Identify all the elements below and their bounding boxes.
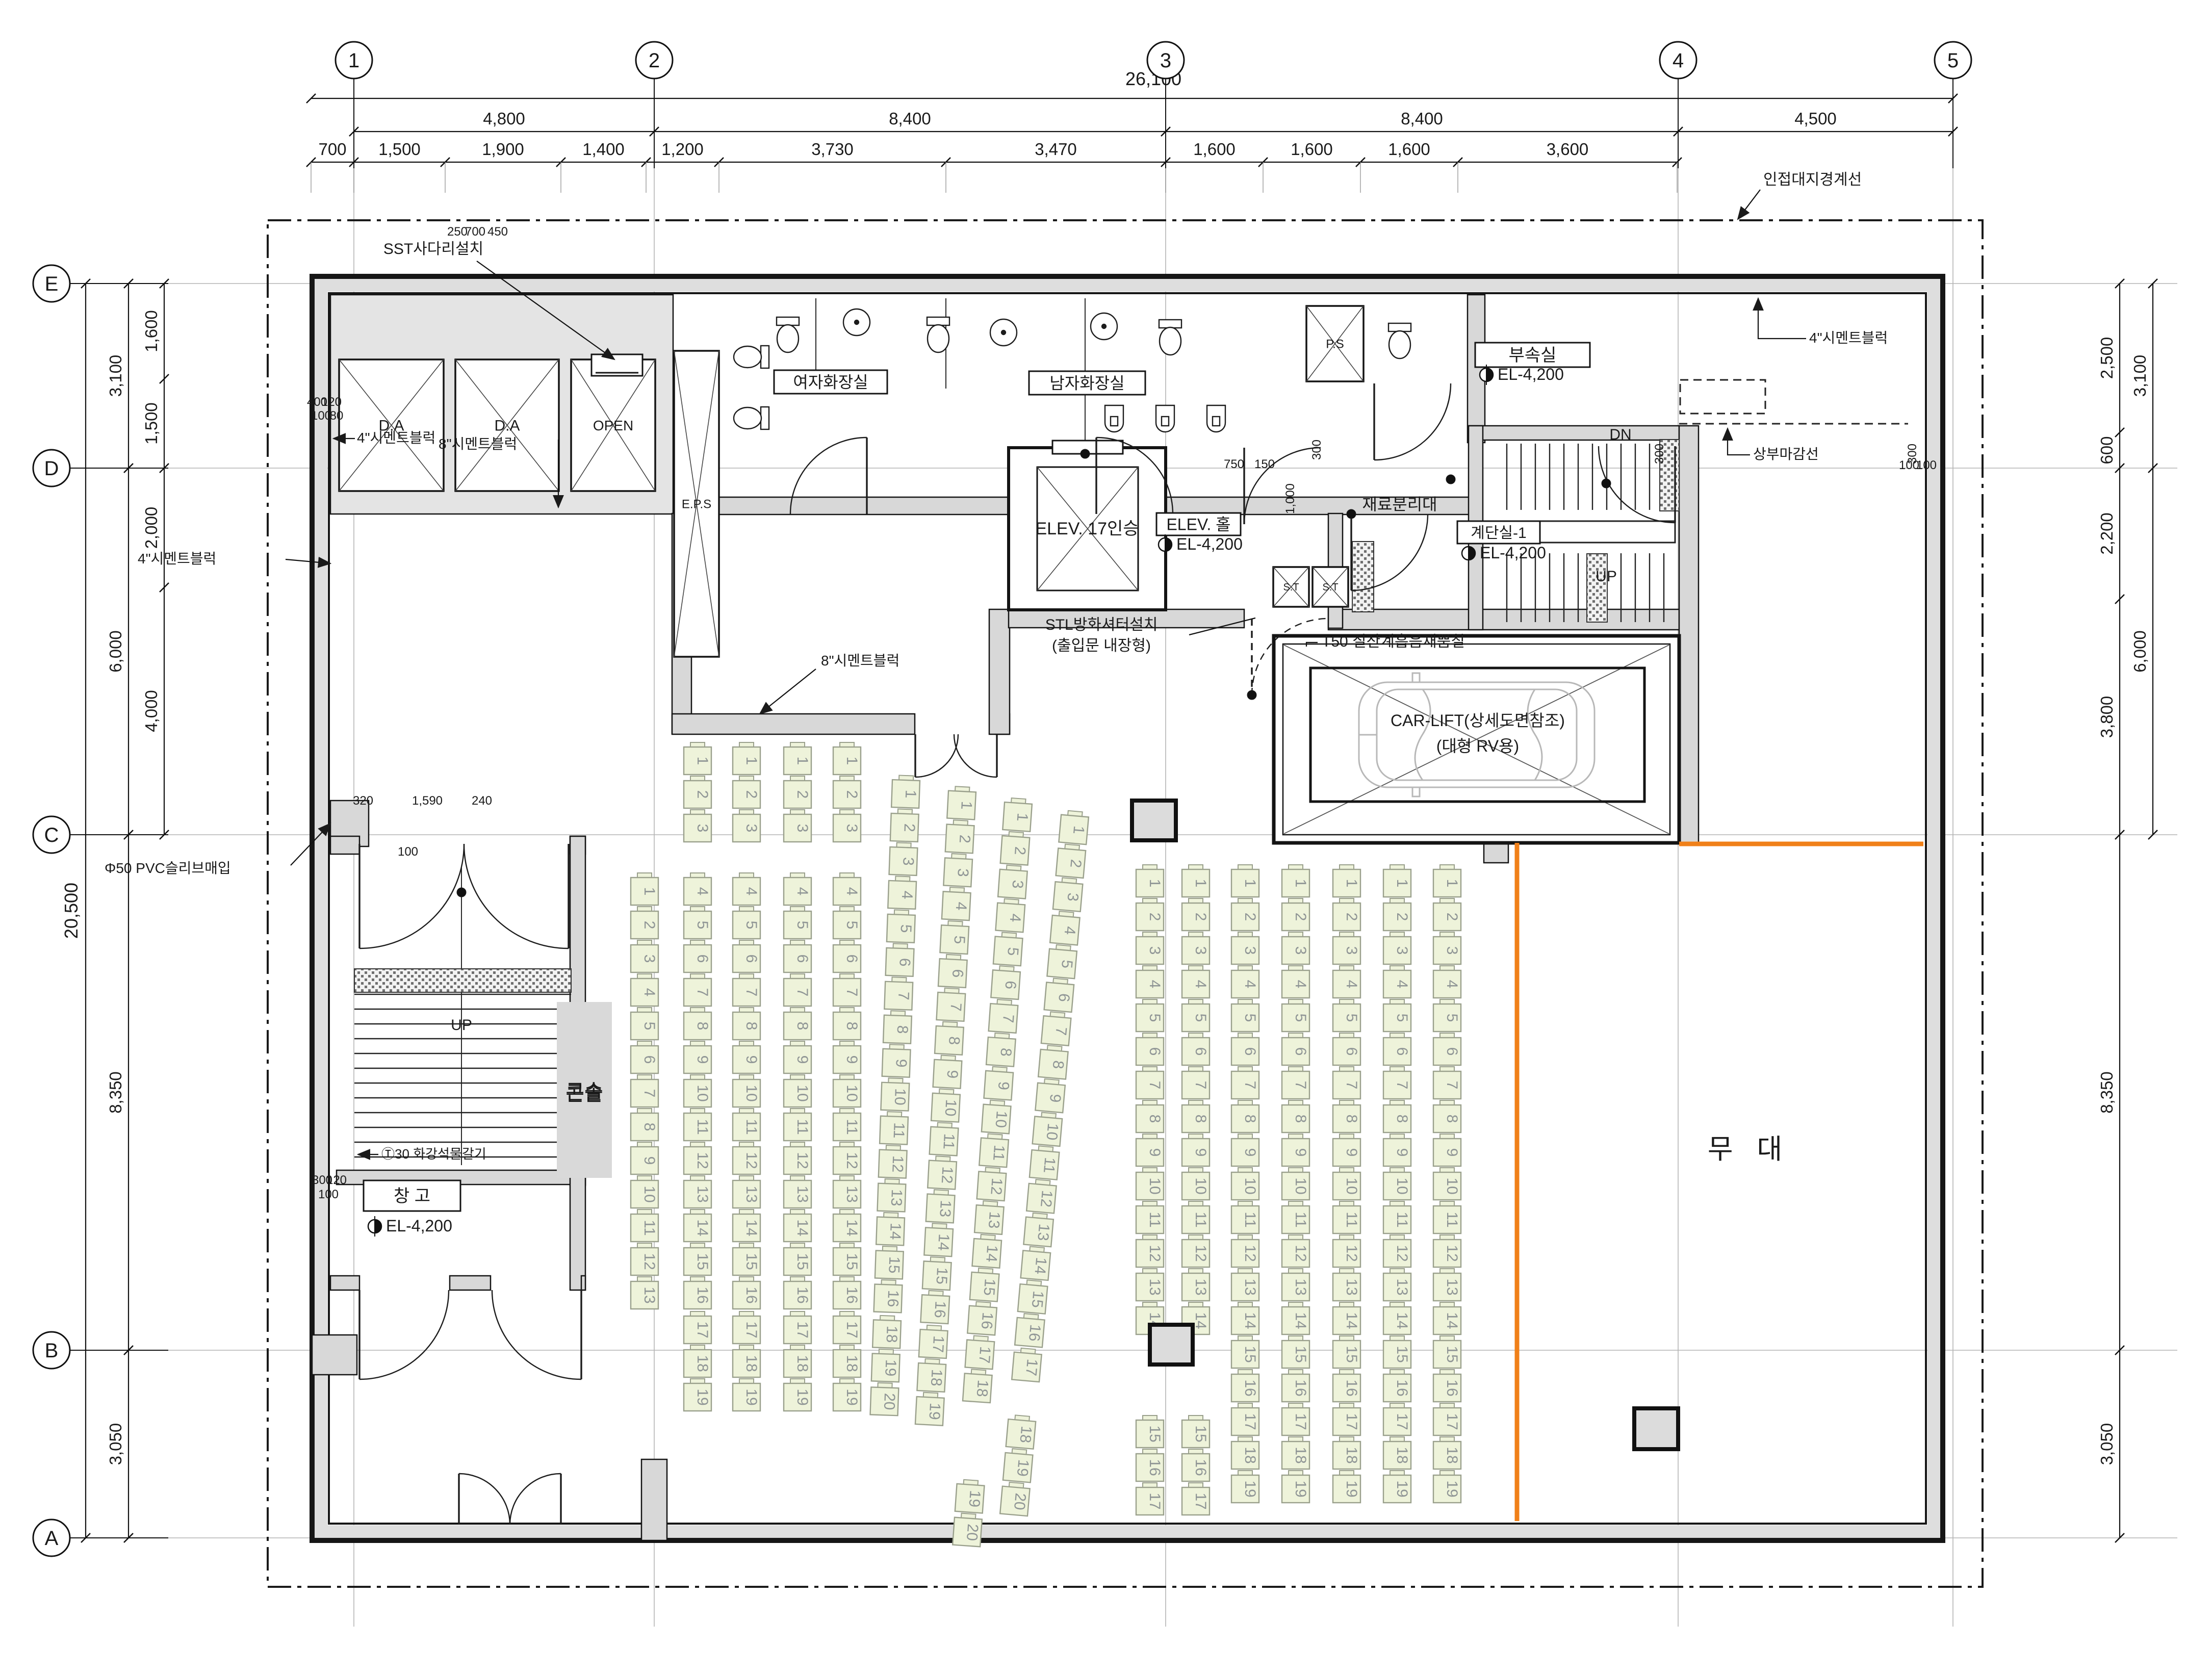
dimension-value: 6,000 <box>106 630 125 673</box>
seat-number: 13 <box>985 1211 1003 1229</box>
grid-bubble-number: 5 <box>1947 49 1959 72</box>
seat-number: 17 <box>1444 1413 1460 1430</box>
seat-number: 2 <box>794 790 811 799</box>
seat-number: 5 <box>950 935 968 944</box>
seat-number: 1 <box>1343 879 1360 888</box>
seat-number: 18 <box>1394 1447 1410 1463</box>
dimension-value: 2,500 <box>2097 337 2116 379</box>
elevation-value: EL-4,200 <box>1480 544 1546 562</box>
seat-number: 11 <box>794 1119 811 1135</box>
seat-number: 19 <box>794 1388 811 1405</box>
seat-number: 11 <box>890 1122 907 1139</box>
dimension-value: 1,500 <box>378 140 421 159</box>
floor-plan-drawing: D.AD.AOPENE.P.SP.SS.TS.TELEV. 17인승CAR-LI… <box>0 0 2212 1673</box>
seat-number: 16 <box>1242 1379 1258 1396</box>
seat-number: 6 <box>641 1056 658 1064</box>
sink-icon <box>843 309 870 336</box>
seat-number: 4 <box>743 887 760 896</box>
seat-number: 7 <box>1146 1081 1163 1090</box>
annotation-text: 4"시멘트블럭 <box>357 430 435 446</box>
annotation-text: Ⓣ30 화강석물갈기 <box>381 1146 486 1162</box>
grid-bubble-letter: C <box>44 824 59 846</box>
seat-number: 5 <box>1394 1014 1410 1022</box>
seat-number: 6 <box>1444 1047 1460 1056</box>
seat-number: 9 <box>1046 1093 1064 1103</box>
grid-bubble-number: 2 <box>649 49 660 72</box>
small-dimension: 240 <box>472 794 492 808</box>
seat-number: 1 <box>1394 879 1410 888</box>
seat-number: 15 <box>1292 1346 1309 1362</box>
seat-number: 14 <box>887 1223 904 1241</box>
car-lift-sublabel: (대형 RV용) <box>1436 737 1519 755</box>
dimension-value: 1,600 <box>1291 140 1333 159</box>
wall-segment <box>450 1276 491 1290</box>
seat-number: 9 <box>944 1070 961 1079</box>
dimension-value: 1,400 <box>582 140 625 159</box>
grid-bubble-letter: E <box>45 273 59 295</box>
car-lift-label: CAR-LIFT(상세도면참조) <box>1391 711 1565 730</box>
seat-number: 4 <box>953 902 970 911</box>
seat-number: 16 <box>694 1286 711 1303</box>
seat-number: 16 <box>1394 1379 1410 1396</box>
seat-number: 13 <box>1034 1223 1052 1242</box>
seat-number: 10 <box>1343 1177 1360 1194</box>
seat-number: 12 <box>1037 1190 1056 1208</box>
seat-number: 12 <box>987 1177 1005 1196</box>
seat-number: 8 <box>794 1022 811 1031</box>
seat-number: 15 <box>981 1278 998 1297</box>
wall-segment <box>581 1276 585 1290</box>
room-name-label: 부속실 <box>1509 346 1557 365</box>
seat-number: 16 <box>743 1286 760 1303</box>
seat-number: 17 <box>1394 1413 1410 1430</box>
annotation-text: (출입문 내장형) <box>1052 637 1151 654</box>
seat-number: 5 <box>743 921 760 930</box>
seat-number: 2 <box>1394 913 1410 921</box>
sink-icon <box>1091 313 1117 340</box>
seat-number: 10 <box>794 1085 811 1101</box>
small-dimension: 300 <box>1653 444 1666 464</box>
seat-number: 15 <box>1028 1290 1047 1308</box>
seat-number: 12 <box>1192 1245 1209 1262</box>
seat-number: 16 <box>1292 1379 1309 1396</box>
dimension-value: 4,500 <box>1794 109 1837 128</box>
hatched-block-pier <box>1352 542 1374 612</box>
seat-number: 4 <box>898 890 916 899</box>
seat-number: 3 <box>899 857 917 866</box>
seat-number: 14 <box>1242 1312 1258 1329</box>
seat-number: 12 <box>1394 1245 1410 1262</box>
seat-number: 4 <box>1444 980 1460 989</box>
room-label: S.T <box>1322 582 1338 593</box>
seat-number: 9 <box>995 1081 1012 1091</box>
wall-segment <box>989 609 1010 734</box>
grid-bubble-letter: A <box>45 1527 59 1550</box>
room-name-label: 여자화장실 <box>793 373 868 392</box>
seat-number: 16 <box>931 1301 949 1319</box>
seat-number: 4 <box>641 988 658 997</box>
seat-number: 10 <box>942 1099 960 1117</box>
seat-number: 5 <box>1444 1014 1460 1022</box>
seat-number: 4 <box>1292 980 1309 989</box>
toilet-icon <box>734 346 769 368</box>
seat-number: 6 <box>1242 1047 1258 1056</box>
seat-number: 18 <box>1242 1447 1258 1463</box>
seat-number: 11 <box>1242 1212 1258 1227</box>
text-label: UP <box>451 1017 472 1034</box>
seat-number: 6 <box>743 955 760 963</box>
dimension-value: 3,050 <box>106 1423 125 1465</box>
seat-number: 10 <box>1192 1177 1209 1194</box>
seat-number: 16 <box>978 1311 996 1330</box>
seat-number: 18 <box>1017 1425 1035 1444</box>
seat-number: 8 <box>1192 1115 1209 1123</box>
dimension-value: 1,600 <box>1388 140 1430 159</box>
annotation-text: Φ50 PVC슬리브매입 <box>105 860 231 876</box>
seat-number: 17 <box>1022 1358 1041 1377</box>
wall-segment <box>1679 426 1699 844</box>
structural-column <box>1150 1325 1193 1365</box>
seat-number: 17 <box>1192 1492 1209 1509</box>
seat-number: 18 <box>694 1355 711 1372</box>
seat-number: 14 <box>1394 1312 1410 1329</box>
seat-number: 14 <box>1292 1312 1309 1329</box>
seat-number: 2 <box>1067 859 1084 869</box>
elevation-value: EL-4,200 <box>1498 365 1564 383</box>
wall-segment <box>330 836 359 854</box>
seat-number: 9 <box>743 1056 760 1064</box>
seat-number: 1 <box>902 789 919 799</box>
toilet-icon <box>1388 323 1411 358</box>
annotation-text: 상부마감선 <box>1753 446 1819 462</box>
seat-number: 4 <box>1242 980 1258 989</box>
dimension-value: 3,470 <box>1035 140 1077 159</box>
seat-number: 3 <box>954 868 971 877</box>
seat-number: 2 <box>743 790 760 799</box>
seat-number: 14 <box>983 1245 1000 1263</box>
seat-number: 4 <box>1192 980 1209 989</box>
wall-segment <box>672 714 915 734</box>
seat-number: 3 <box>843 824 860 833</box>
seat-number: 10 <box>1292 1177 1309 1194</box>
seat-number: 4 <box>1394 980 1410 989</box>
seat-number: 6 <box>1146 1047 1163 1056</box>
seat-number: 12 <box>641 1253 658 1270</box>
wall-segment <box>641 1459 667 1540</box>
seat-number: 9 <box>794 1056 811 1064</box>
wall-segment <box>570 1170 585 1290</box>
seat-number: 16 <box>1444 1379 1460 1396</box>
dimension-total: 20,500 <box>61 883 82 939</box>
seat-number: 13 <box>843 1186 860 1202</box>
seat-number: 3 <box>743 824 760 833</box>
seat-number: 11 <box>1292 1212 1309 1227</box>
seat-number: 19 <box>925 1402 943 1420</box>
small-dimension: 1,590 <box>412 794 443 808</box>
dimension-value: 3,050 <box>2097 1423 2116 1465</box>
seat-number: 20 <box>963 1523 981 1541</box>
seat-number: 19 <box>1444 1480 1460 1497</box>
seat-number: 12 <box>694 1152 711 1169</box>
car-lift-room: CAR-LIFT(상세도면참조)(대형 RV용) <box>1274 636 1679 843</box>
room-name-label: 계단실-1 <box>1471 525 1526 542</box>
seat-number: 5 <box>641 1022 658 1031</box>
grid-bubble-letter: D <box>44 457 59 480</box>
dimension-value: 600 <box>2097 436 2116 464</box>
seat-number: 1 <box>1292 879 1309 888</box>
seat-number: 20 <box>881 1393 898 1410</box>
dimension-value: 8,400 <box>889 109 931 128</box>
room-name-label: ELEV. 홀 <box>1166 516 1230 534</box>
seat-number: 9 <box>641 1156 658 1165</box>
seat-number: 1 <box>1444 879 1460 888</box>
small-dimension: 120 <box>321 395 342 409</box>
seat-number: 11 <box>1192 1212 1209 1227</box>
wall-segment <box>1469 426 1679 440</box>
seat-number: 3 <box>1146 946 1163 955</box>
seat-number: 5 <box>1292 1014 1309 1022</box>
seat-number: 15 <box>1343 1346 1360 1362</box>
room-label: D.A <box>494 418 520 434</box>
seat-number: 1 <box>958 801 975 810</box>
seat-number: 9 <box>1292 1148 1309 1157</box>
text-label: DN <box>1609 426 1631 443</box>
seat-number: 6 <box>1192 1047 1209 1056</box>
dimension-value: 3,100 <box>2130 355 2149 397</box>
seat-number: 3 <box>1242 946 1258 955</box>
seat-number: 12 <box>1343 1245 1360 1262</box>
seat-number: 1 <box>843 757 860 765</box>
small-dimension: 120 <box>326 1173 347 1187</box>
console-label: 콘솔 <box>565 1081 603 1103</box>
annotation-text: SST사다리설치 <box>383 241 483 258</box>
seat-number: 6 <box>1343 1047 1360 1056</box>
seat-number: 13 <box>641 1286 658 1303</box>
seat-number: 12 <box>938 1166 956 1184</box>
seat-number: 2 <box>1242 913 1258 921</box>
seat-number: 10 <box>743 1085 760 1101</box>
seat-number: 4 <box>843 887 860 896</box>
seat-number: 17 <box>794 1321 811 1338</box>
sink-icon <box>990 319 1017 346</box>
dimension-value: 3,730 <box>811 140 854 159</box>
dimension-value: 4,800 <box>483 109 525 128</box>
seat-number: 6 <box>1292 1047 1309 1056</box>
annotation-text: T50 질산계흡음재뿜칠 <box>1322 633 1465 650</box>
seat-number: 1 <box>1014 812 1031 822</box>
seat-number: 6 <box>794 955 811 963</box>
seat-number: 13 <box>1242 1278 1258 1295</box>
seat-number: 3 <box>1192 946 1209 955</box>
seat-number: 2 <box>901 823 918 832</box>
seat-number: 18 <box>794 1355 811 1372</box>
seat-number: 13 <box>888 1189 905 1207</box>
seat-number: 18 <box>1343 1447 1360 1463</box>
seat-number: 9 <box>1146 1148 1163 1157</box>
seat-number: 8 <box>843 1022 860 1031</box>
seat-number: 2 <box>641 921 658 930</box>
seat-number: 19 <box>965 1490 983 1508</box>
seat-number: 19 <box>1292 1480 1309 1497</box>
seat-number: 1 <box>743 757 760 765</box>
seat-number: 10 <box>891 1088 909 1106</box>
seat-number: 17 <box>1292 1413 1309 1430</box>
seat-number: 11 <box>694 1119 711 1135</box>
seat-number: 6 <box>896 958 913 967</box>
toilet-icon <box>777 317 799 352</box>
grid-bubble-number: 1 <box>348 49 359 72</box>
seat-number: 11 <box>1343 1212 1360 1227</box>
seat-number: 3 <box>1444 946 1460 955</box>
seat-number: 5 <box>897 924 915 933</box>
seat-number: 14 <box>1031 1256 1049 1275</box>
seat-number: 2 <box>1146 913 1163 921</box>
seat-number: 10 <box>843 1085 860 1101</box>
annotation-text: STL방화셔터설치 <box>1045 616 1158 633</box>
dimension-value: 3,600 <box>1547 140 1589 159</box>
elevator-label: ELEV. 17인승 <box>1035 519 1139 538</box>
seat-number: 19 <box>882 1359 899 1377</box>
seat-number: 2 <box>1192 913 1209 921</box>
urinal-icon <box>1207 405 1225 432</box>
toilet-icon <box>927 317 949 352</box>
seat-number: 15 <box>794 1253 811 1270</box>
dimension-value: 2,200 <box>2097 512 2116 555</box>
dimension-value: 8,400 <box>1401 109 1443 128</box>
seat-number: 15 <box>1242 1346 1258 1362</box>
seat-number: 8 <box>1343 1115 1360 1123</box>
annotation-text: 8"시멘트블럭 <box>821 653 899 668</box>
seat-number: 2 <box>1343 913 1360 921</box>
small-dimension: 100 <box>398 845 418 859</box>
seat-number: 19 <box>694 1388 711 1405</box>
seat-number: 7 <box>694 988 711 997</box>
seat-number: 17 <box>694 1321 711 1338</box>
dimension-value: 8,350 <box>106 1071 125 1114</box>
seat-number: 7 <box>999 1014 1017 1023</box>
seat-number: 18 <box>883 1325 900 1343</box>
seat-number: 16 <box>884 1290 902 1307</box>
seat-number: 11 <box>1394 1212 1410 1227</box>
seat-number: 16 <box>1343 1379 1360 1396</box>
seat-number: 3 <box>641 955 658 963</box>
seat-number: 19 <box>1394 1480 1410 1497</box>
seat-number: 13 <box>1444 1278 1460 1295</box>
seat-number: 7 <box>743 988 760 997</box>
seat-number: 6 <box>843 955 860 963</box>
seat-number: 15 <box>743 1253 760 1270</box>
seat-number: 13 <box>1192 1278 1209 1295</box>
seat-number: 7 <box>1242 1081 1258 1090</box>
seat-number: 12 <box>1444 1245 1460 1262</box>
seat-number: 7 <box>1444 1081 1460 1090</box>
dimension-value: 8,350 <box>2097 1071 2116 1114</box>
seat-number: 2 <box>1011 846 1028 856</box>
seat-number: 4 <box>1343 980 1360 989</box>
seat-number: 1 <box>1070 825 1087 835</box>
seat-number: 12 <box>843 1152 860 1169</box>
seat-number: 11 <box>641 1220 658 1236</box>
dimension-value: 3,800 <box>2097 696 2116 738</box>
grid-bubble-number: 3 <box>1160 49 1171 72</box>
seat-number: 1 <box>641 887 658 896</box>
seat-number: 19 <box>743 1388 760 1405</box>
seat-number: 16 <box>1192 1459 1209 1476</box>
small-dimension: 100 <box>311 409 331 423</box>
seat-number: 1 <box>694 757 711 765</box>
seat-number: 8 <box>997 1047 1014 1057</box>
small-dimension: 150 <box>1254 457 1275 471</box>
small-dimension: 80 <box>330 409 344 423</box>
seat-number: 10 <box>1146 1177 1163 1194</box>
seat-number: 14 <box>743 1219 760 1236</box>
seat-number: 11 <box>843 1119 860 1135</box>
seat-number: 11 <box>743 1119 760 1135</box>
seat-number: 6 <box>1002 980 1019 990</box>
seat-number: 19 <box>1343 1480 1360 1497</box>
room-name-label: 창 고 <box>394 1187 430 1206</box>
seat-number: 18 <box>743 1355 760 1372</box>
room-label: P.S <box>1326 337 1344 351</box>
toilet-icon <box>734 407 769 429</box>
seat-number: 8 <box>1444 1115 1460 1123</box>
seat-number: 3 <box>1064 892 1081 902</box>
seat-number: 8 <box>894 1025 911 1034</box>
seat-number: 14 <box>1444 1312 1460 1329</box>
seat-number: 15 <box>1146 1425 1163 1442</box>
seat-number: 8 <box>641 1123 658 1131</box>
room-label: OPEN <box>593 418 633 433</box>
seat-number: 7 <box>1192 1081 1209 1090</box>
urinal-icon <box>1156 405 1174 432</box>
seat-number: 11 <box>990 1144 1008 1161</box>
seat-number: 18 <box>1292 1447 1309 1463</box>
seat-number: 18 <box>1444 1447 1460 1463</box>
seat-number: 13 <box>1146 1278 1163 1295</box>
dimension-value: 700 <box>318 140 346 159</box>
seat-number: 4 <box>1146 980 1163 989</box>
annotation-text: 8"시멘트블럭 <box>439 436 517 452</box>
seat-number: 17 <box>929 1335 947 1353</box>
dimension-value: 1,600 <box>142 310 161 352</box>
wall-segment <box>312 1335 357 1375</box>
dimension-value: 1,500 <box>142 402 161 445</box>
seat-number: 18 <box>928 1369 945 1386</box>
dimension-value: 4,000 <box>142 690 161 732</box>
seat-number: 6 <box>1055 993 1072 1003</box>
seat-number: 10 <box>1043 1122 1061 1141</box>
grid-bubble-number: 4 <box>1673 49 1684 72</box>
seat-number: 16 <box>1025 1324 1044 1342</box>
text-label: UP <box>1596 568 1617 585</box>
elevator-shaft: ELEV. 17인승 <box>1009 441 1166 610</box>
seat-number: 13 <box>936 1200 954 1218</box>
seat-number: 12 <box>1242 1245 1258 1262</box>
seat-number: 1 <box>1192 879 1209 888</box>
dimension-value: 1,200 <box>661 140 704 159</box>
seat-number: 4 <box>1007 913 1024 923</box>
seat-number: 10 <box>992 1110 1010 1128</box>
seat-number: 15 <box>1192 1425 1209 1442</box>
seat-number: 20 <box>1011 1492 1029 1511</box>
seat-number: 6 <box>1394 1047 1410 1056</box>
seat-number: 6 <box>949 969 966 978</box>
seat-number: 13 <box>743 1186 760 1202</box>
seat-number: 5 <box>1192 1014 1209 1022</box>
seat-number: 18 <box>843 1355 860 1372</box>
seat-number: 5 <box>843 921 860 930</box>
seat-number: 14 <box>1343 1312 1360 1329</box>
